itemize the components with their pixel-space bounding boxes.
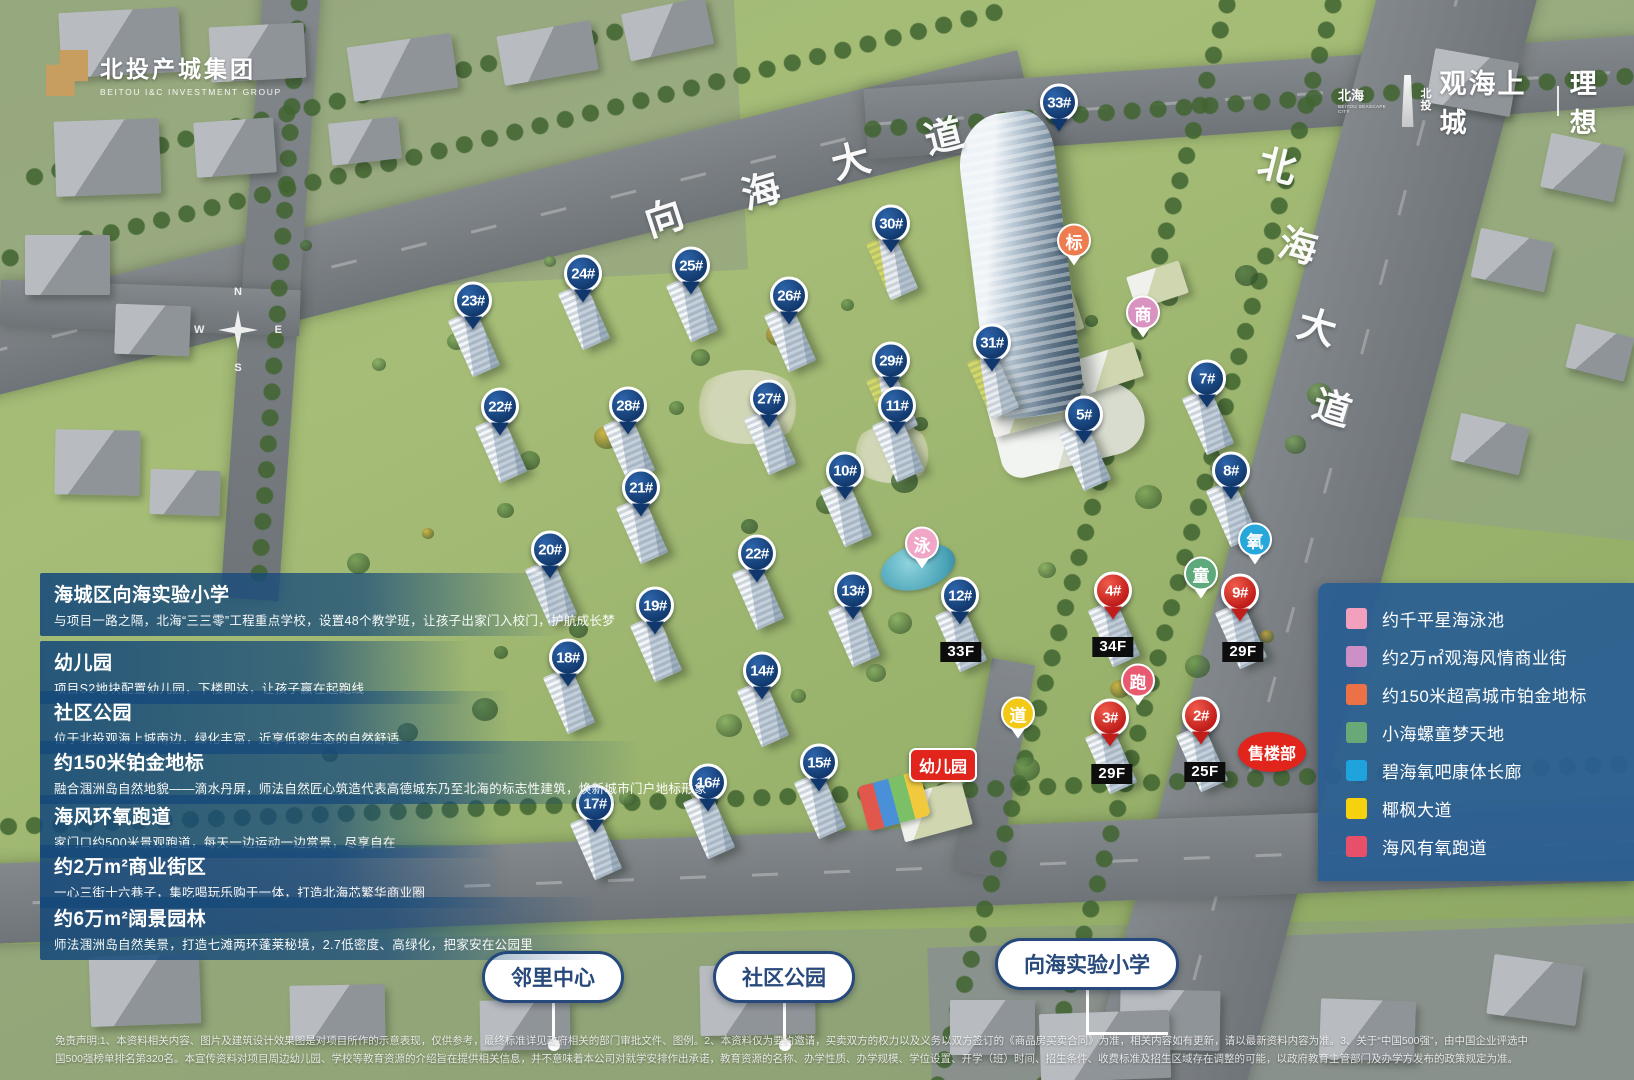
building-pin-27: 27#	[750, 380, 788, 437]
tree	[1185, 655, 1210, 678]
tower-icon	[1402, 75, 1414, 127]
tree	[1235, 265, 1258, 286]
building-pin-19: 19#	[636, 587, 674, 644]
building-pin-pointer	[1231, 609, 1249, 631]
legend-label: 海风有氧跑道	[1382, 834, 1487, 859]
building-pin-pointer	[699, 799, 717, 821]
building-pin-pointer	[1104, 607, 1122, 629]
floor-count-label: 34F	[1092, 637, 1133, 657]
building-pin-label: 19#	[636, 587, 674, 625]
legend-swatch	[1346, 684, 1367, 705]
developer-name: 北投产城集团	[100, 50, 282, 84]
poi-marker-swimming-pool: 泳	[905, 527, 939, 576]
building-pin-label: 4#	[1094, 572, 1132, 610]
building-pin-label: 18#	[549, 639, 587, 677]
legend-label: 碧海氧吧康体长廊	[1382, 758, 1522, 783]
tree	[1085, 315, 1098, 327]
callout-leader-line	[1086, 988, 1089, 1032]
project-name: 观海上城	[1440, 62, 1546, 140]
building-pin-26: 26#	[770, 277, 808, 334]
building-pin-15: 15#	[800, 744, 838, 801]
building-pin-31: 31#	[973, 324, 1011, 381]
disclaimer-line-2: 国500强榜单排名第320名。本宣传资料对项目周边幼儿园、学校等教育资源的介绍旨…	[55, 1050, 1604, 1068]
poi-marker-pointer	[915, 559, 929, 576]
legend-swatch	[1346, 798, 1367, 819]
city-building	[89, 953, 201, 1027]
building-pin-label: 14#	[743, 652, 781, 690]
tree	[347, 553, 370, 574]
callout-xianghai-primary-school: 向海实验小学	[995, 938, 1179, 990]
building-pin-13: 13#	[834, 572, 872, 629]
kindergarten-badge: 幼儿园	[909, 748, 977, 782]
compass-e: E	[275, 324, 282, 336]
building-pin-label: 8#	[1212, 452, 1250, 490]
legend-item: 约150米超高城市铂金地标	[1346, 682, 1634, 707]
tree	[866, 664, 886, 682]
building-pin-pointer	[748, 570, 766, 592]
building-pin-label: 33#	[1040, 84, 1078, 122]
city-building	[25, 235, 110, 295]
building-pin-pointer	[983, 359, 1001, 381]
building-pin-label: 11#	[878, 387, 916, 425]
project-city: 北海	[1338, 89, 1395, 102]
building-pin-pointer	[1222, 487, 1240, 509]
info-panel-title: 约6万m²阔景园林	[54, 904, 600, 931]
info-panel-title: 海城区向海实验小学	[54, 580, 560, 607]
city-building	[54, 118, 162, 197]
building-pin-28: 28#	[609, 387, 647, 444]
legend-swatch	[1346, 722, 1367, 743]
developer-logo-icon	[46, 50, 88, 96]
poi-marker-running-track: 跑	[1121, 664, 1155, 713]
city-building	[114, 304, 191, 357]
tree	[716, 714, 742, 737]
building-pin-pointer	[559, 674, 577, 696]
legend-item: 约2万㎡观海风情商业街	[1346, 644, 1634, 669]
legend-swatch	[1346, 608, 1367, 629]
compass-w: W	[194, 324, 204, 336]
tree	[300, 240, 312, 251]
legend-label: 约150米超高城市铂金地标	[1382, 682, 1587, 707]
building-pin-pointer	[780, 312, 798, 334]
building-pin-5: 5#	[1065, 396, 1103, 453]
sales-office-badge: 售楼部	[1238, 732, 1306, 772]
tree	[544, 256, 556, 267]
disclaimer: 免责声明:1、本资料相关内容、图片及建筑设计效果图是对项目所作的示意表现，仅供参…	[55, 1032, 1604, 1069]
building-pin-22: 22#	[481, 388, 519, 445]
project-city-en: BEITOU SEASCAPE CITY	[1338, 104, 1395, 114]
building-pin-label: 24#	[564, 255, 602, 293]
building-pin-24: 24#	[564, 255, 602, 312]
project-logo: 北海 BEITOU SEASCAPE CITY 北投 观海上城 理想	[1338, 62, 1634, 140]
building-pin-pointer	[464, 317, 482, 339]
building-pin-pointer	[586, 820, 604, 842]
building-pin-label: 28#	[609, 387, 647, 425]
building-pin-pointer	[1101, 734, 1119, 756]
building-pin-pointer	[753, 687, 771, 709]
compass-rose: N E S W	[196, 288, 280, 372]
building-pin-pointer	[882, 240, 900, 262]
building-pin-pointer	[1050, 119, 1068, 141]
building-pin-pointer	[951, 612, 969, 634]
building-pin-label: 29#	[872, 342, 910, 380]
building-pin-label: 5#	[1065, 396, 1103, 434]
legend-label: 约2万㎡观海风情商业街	[1382, 644, 1567, 669]
poi-marker-label: 童	[1184, 557, 1218, 591]
poi-marker-label: 跑	[1121, 664, 1155, 698]
building-pin-label: 7#	[1188, 360, 1226, 398]
tree	[741, 519, 758, 534]
legend-item: 海风有氧跑道	[1346, 834, 1634, 859]
building-pin-22: 22#	[738, 535, 776, 592]
legend-swatch	[1346, 646, 1367, 667]
building-pin-pointer	[844, 607, 862, 629]
building-pin-pointer	[1198, 395, 1216, 417]
poi-marker-oxygen-corridor: 氧	[1238, 523, 1272, 572]
city-building	[1486, 954, 1583, 1026]
building-pin-label: 23#	[454, 282, 492, 320]
building-pin-12: 12#	[941, 577, 979, 634]
floor-count-label: 29F	[1222, 642, 1263, 662]
building-pin-label: 13#	[834, 572, 872, 610]
info-panel-title: 约150米铂金地标	[54, 748, 640, 775]
tree	[494, 646, 508, 659]
city-building	[193, 117, 277, 177]
compass-star	[218, 310, 258, 350]
tree	[1038, 562, 1056, 578]
building-pin-33: 33#	[1040, 84, 1078, 141]
building-pin-label: 27#	[750, 380, 788, 418]
info-panel: 海城区向海实验小学与项目一路之隔，北海“三三零”工程重点学校，设置48个教学班，…	[40, 573, 560, 636]
poi-marker-pointer	[1011, 729, 1025, 746]
building-pin-11: 11#	[878, 387, 916, 444]
poi-marker-pointer	[1248, 555, 1262, 572]
legend-panel: 约千平星海泳池约2万㎡观海风情商业街约150米超高城市铂金地标小海螺童梦天地碧海…	[1318, 583, 1634, 881]
building-pin-label: 21#	[622, 469, 660, 507]
floor-count-label: 33F	[940, 642, 981, 662]
floor-count-label: 25F	[1184, 762, 1225, 782]
tree	[1285, 435, 1306, 454]
poi-marker-pointer	[1194, 589, 1208, 606]
building-pin-14: 14#	[743, 652, 781, 709]
building-pin-label: 22#	[481, 388, 519, 426]
building-pin-23: 23#	[454, 282, 492, 339]
tree	[1260, 630, 1274, 643]
building-pin-label: 31#	[973, 324, 1011, 362]
info-panel-desc: 与项目一路之隔，北海“三三零”工程重点学校，设置48个教学班，让孩子出家门入校门…	[54, 610, 560, 629]
building-pin-pointer	[619, 422, 637, 444]
building-pin-4: 4#	[1094, 572, 1132, 629]
info-panel-title: 海风环氧跑道	[54, 802, 500, 829]
poi-marker-pointer	[1067, 256, 1081, 273]
developer-name-en: BEITOU I&C INVESTMENT GROUP	[100, 87, 282, 97]
poi-marker-label: 商	[1126, 296, 1160, 330]
building-pin-pointer	[888, 422, 906, 444]
legend-item: 椰枫大道	[1346, 796, 1634, 821]
building-pin-pointer	[760, 415, 778, 437]
info-panel-desc: 师法涠洲岛自然美景，打造七滩两环蓬莱秘境，2.7低密度、高绿化，把家安在公园里	[54, 934, 600, 953]
tree	[791, 689, 806, 703]
building-pin-label: 22#	[738, 535, 776, 573]
building-pin-label: 9#	[1221, 574, 1259, 612]
building-pin-pointer	[574, 290, 592, 312]
tree	[372, 358, 386, 371]
tree	[497, 503, 514, 518]
building-pin-label: 2#	[1182, 697, 1220, 735]
building-pin-2: 2#	[1182, 697, 1220, 754]
building-pin-8: 8#	[1212, 452, 1250, 509]
project-prefix: 北投	[1421, 89, 1433, 112]
city-building	[328, 116, 402, 165]
poi-marker-pointer	[1131, 696, 1145, 713]
disclaimer-line-1: 免责声明:1、本资料相关内容、图片及建筑设计效果图是对项目所作的示意表现，仅供参…	[55, 1032, 1604, 1050]
tree	[691, 349, 710, 366]
legend-item: 小海螺童梦天地	[1346, 720, 1634, 745]
poi-marker-label: 泳	[905, 527, 939, 561]
city-building	[54, 429, 140, 495]
tree	[669, 401, 684, 415]
info-panel-title: 社区公园	[54, 698, 510, 725]
building-pin-label: 10#	[826, 452, 864, 490]
building-pin-10: 10#	[826, 452, 864, 509]
building-pin-18: 18#	[549, 639, 587, 696]
poi-marker-commercial-street: 商	[1126, 296, 1160, 345]
legend-label: 椰枫大道	[1382, 796, 1452, 821]
legend-item: 约千平星海泳池	[1346, 606, 1634, 631]
tree	[841, 299, 854, 311]
poi-marker-pointer	[1136, 328, 1150, 345]
masterplan-canvas: N E S W 北投产城集团 BEITOU I&C INVESTMENT GRO…	[0, 0, 1634, 1080]
building-pin-pointer	[810, 779, 828, 801]
developer-logo: 北投产城集团 BEITOU I&C INVESTMENT GROUP	[46, 50, 282, 97]
building-pin-pointer	[682, 282, 700, 304]
floor-count-label: 29F	[1091, 764, 1132, 784]
building-pin-7: 7#	[1188, 360, 1226, 417]
legend-item: 碧海氧吧康体长廊	[1346, 758, 1634, 783]
building-pin-25: 25#	[672, 247, 710, 304]
legend-swatch	[1346, 836, 1367, 857]
building-pin-label: 15#	[800, 744, 838, 782]
info-panel-title: 约2万m²商业街区	[54, 852, 510, 879]
city-building	[149, 469, 221, 516]
info-panel-title: 幼儿园	[54, 648, 470, 675]
poi-marker-coconut-avenue: 道	[1001, 697, 1035, 746]
poi-marker-label: 标	[1057, 224, 1091, 258]
legend-label: 小海螺童梦天地	[1382, 720, 1505, 745]
building-pin-pointer	[1192, 732, 1210, 754]
poi-marker-landmark: 标	[1057, 224, 1091, 273]
building-pin-label: 30#	[872, 205, 910, 243]
legend-swatch	[1346, 760, 1367, 781]
project-suffix: 理想	[1570, 62, 1634, 140]
building-pin-21: 21#	[622, 469, 660, 526]
compass-n: N	[234, 286, 242, 298]
building-pin-label: 25#	[672, 247, 710, 285]
callout-community-park: 社区公园	[713, 951, 855, 1003]
poi-marker-children-playland: 童	[1184, 557, 1218, 606]
building-pin-pointer	[836, 487, 854, 509]
poi-marker-label: 道	[1001, 697, 1035, 731]
building-pin-label: 12#	[941, 577, 979, 615]
building-pin-label: 26#	[770, 277, 808, 315]
info-panel: 约6万m²阔景园林师法涠洲岛自然美景，打造七滩两环蓬莱秘境，2.7低密度、高绿化…	[40, 897, 600, 960]
poi-marker-label: 氧	[1238, 523, 1272, 557]
building-pin-30: 30#	[872, 205, 910, 262]
tree	[1135, 485, 1162, 509]
building-pin-9: 9#	[1221, 574, 1259, 631]
building-pin-label: 20#	[531, 531, 569, 569]
building-pin-pointer	[632, 504, 650, 526]
tree	[888, 612, 912, 634]
building-pin-pointer	[491, 423, 509, 445]
tree	[422, 528, 434, 539]
building-pin-pointer	[1075, 431, 1093, 453]
building-pin-pointer	[646, 622, 664, 644]
legend-label: 约千平星海泳池	[1382, 606, 1505, 631]
logo-divider	[1557, 86, 1559, 116]
compass-s: S	[234, 362, 241, 374]
